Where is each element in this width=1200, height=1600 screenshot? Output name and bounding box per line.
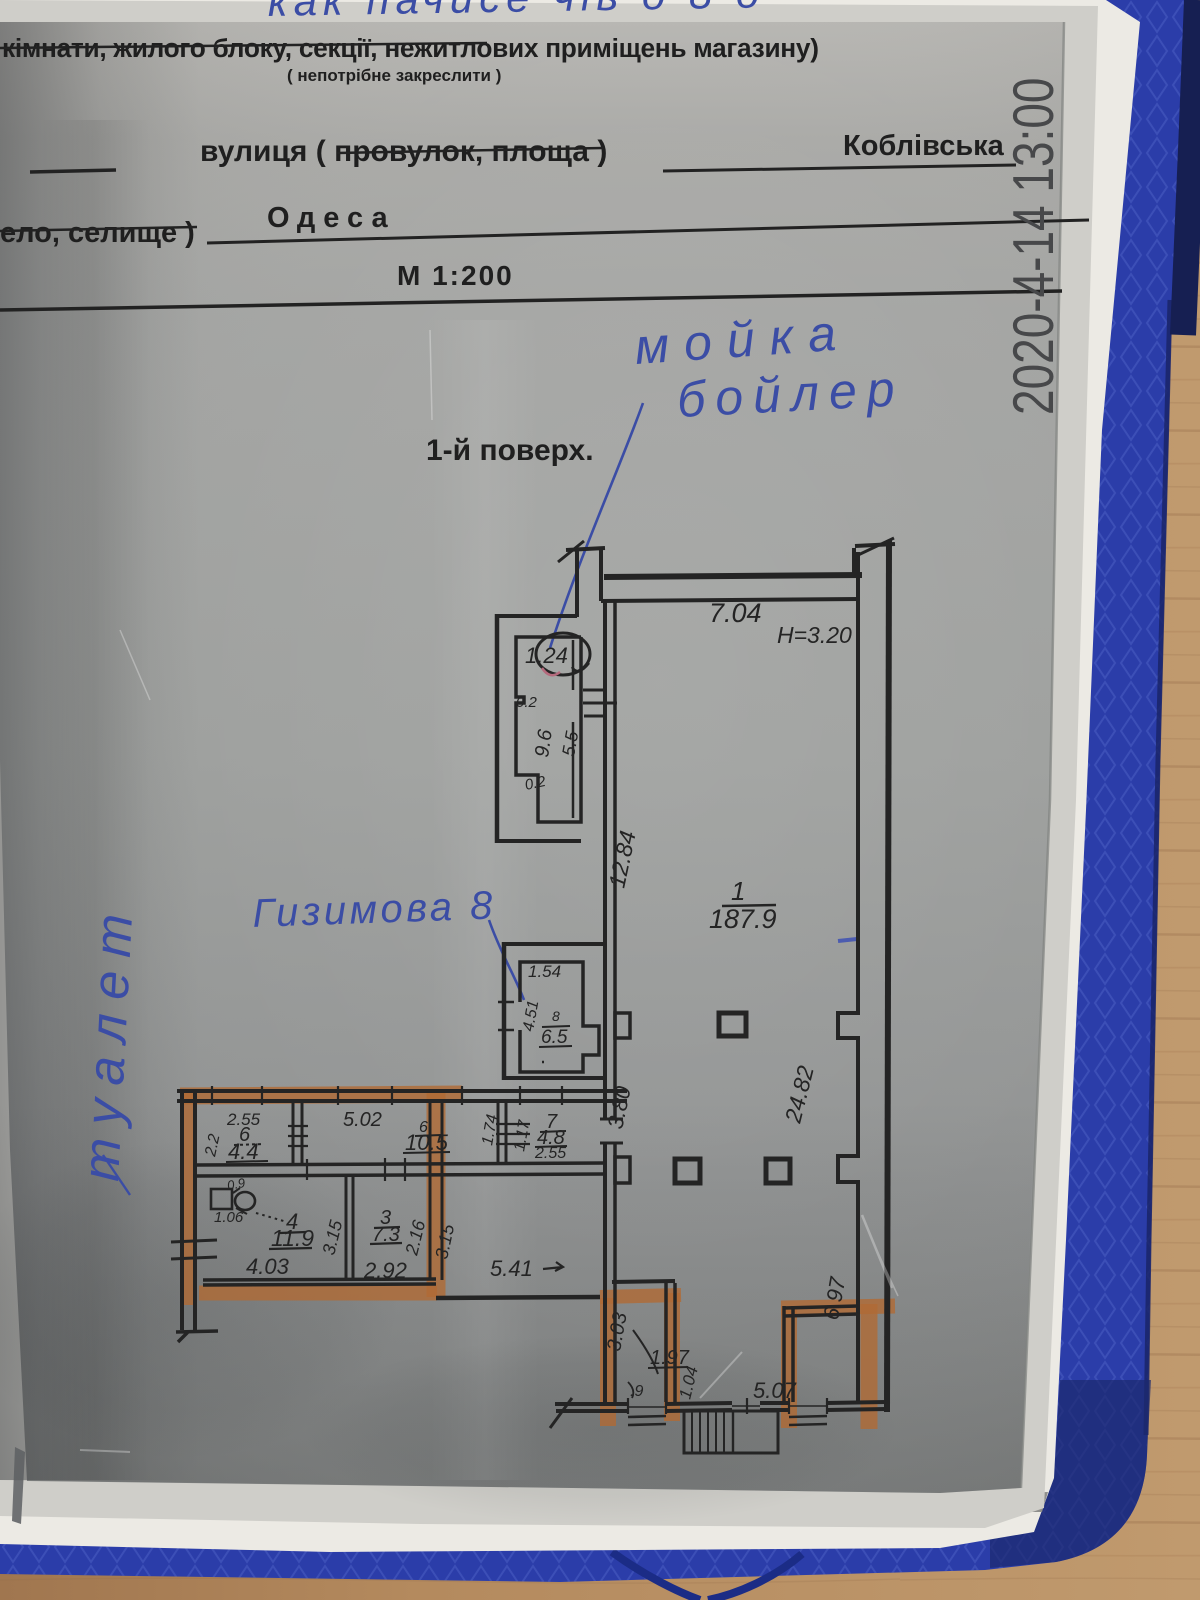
svg-text:4.4: 4.4 <box>228 1139 259 1164</box>
svg-text:0.9: 0.9 <box>226 1175 246 1193</box>
svg-text:бойлер: бойлер <box>676 360 906 428</box>
svg-text:Н=3.20: Н=3.20 <box>777 622 852 648</box>
svg-text:Гизимова 8: Гизимова 8 <box>252 884 497 936</box>
svg-text:5.07: 5.07 <box>753 1378 797 1403</box>
svg-text:2.92: 2.92 <box>363 1258 407 1283</box>
svg-text:0.2: 0.2 <box>516 694 538 711</box>
svg-text:5.41: 5.41 <box>490 1256 533 1281</box>
svg-text:4.03: 4.03 <box>246 1254 290 1279</box>
svg-text:187.9: 187.9 <box>709 904 777 934</box>
svg-text:кімнати, жилого блоку, секції,: кімнати, жилого блоку, секції, нежитлови… <box>2 33 819 63</box>
svg-text:Коблівська: Коблівська <box>843 130 1005 162</box>
svg-text:1.24: 1.24 <box>525 643 568 668</box>
svg-text:Одеса: Одеса <box>267 202 396 234</box>
svg-text:9.6: 9.6 <box>531 727 557 758</box>
svg-text:2.55: 2.55 <box>534 1145 566 1162</box>
svg-text:6.5: 6.5 <box>541 1027 568 1048</box>
svg-text:1-й поверх.: 1-й поверх. <box>426 434 594 467</box>
svg-text:1: 1 <box>731 876 745 906</box>
svg-text:5.02: 5.02 <box>343 1109 382 1131</box>
svg-text:1.06: 1.06 <box>214 1209 244 1226</box>
svg-text:ело, селище ): ело, селище ) <box>0 217 195 249</box>
svg-text:М 1:200: М 1:200 <box>397 260 514 291</box>
svg-text:7.04: 7.04 <box>709 598 762 628</box>
svg-text:2020-4-14 13:00: 2020-4-14 13:00 <box>1002 78 1066 415</box>
svg-text:1.54: 1.54 <box>528 962 561 981</box>
svg-text:( непотрібне закреслити ): ( непотрібне закреслити ) <box>287 66 501 85</box>
svg-text:8: 8 <box>552 1008 560 1024</box>
